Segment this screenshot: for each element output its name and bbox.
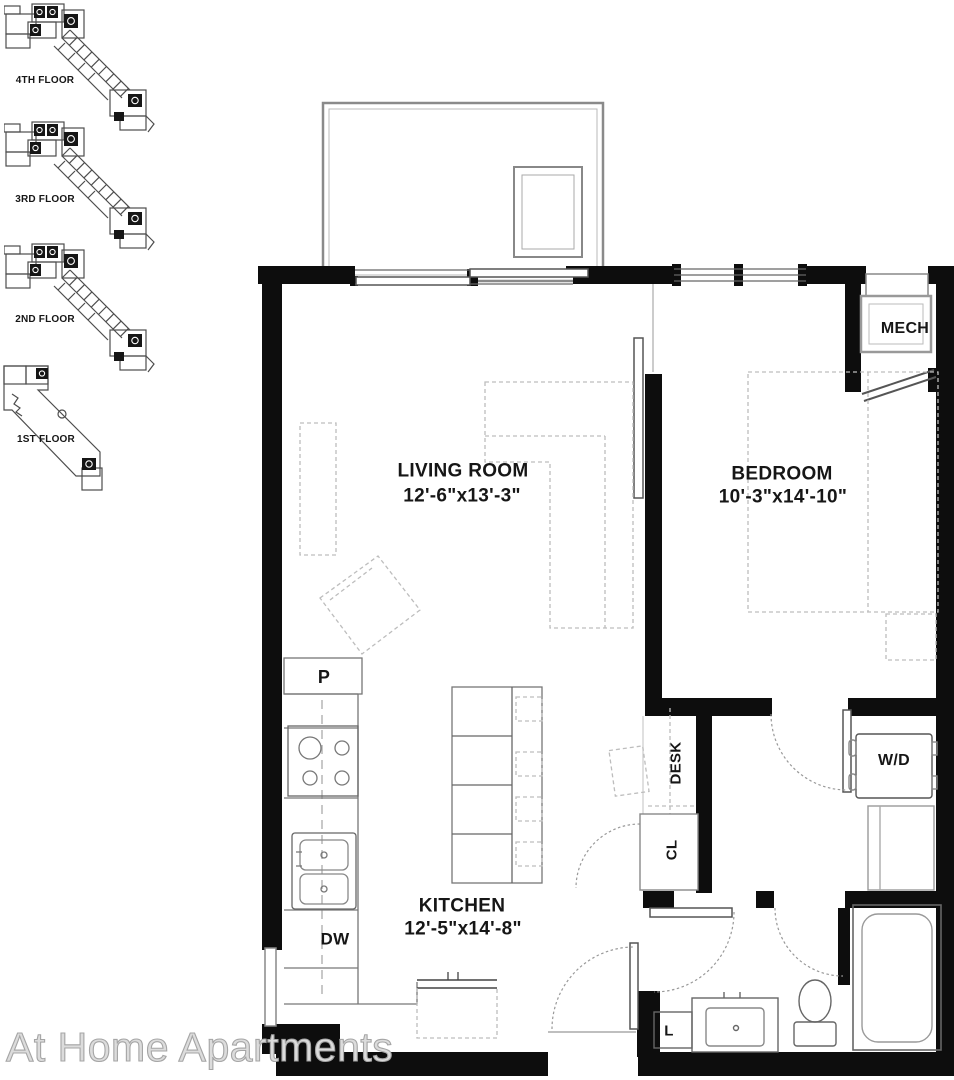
laundry-cabinet [868,806,934,890]
floor-key-label-2nd: 2ND FLOOR [15,315,75,325]
bedroom-sliding-door [634,338,643,498]
dishwasher-label: DW [321,931,350,948]
closet-door-arc [576,824,640,888]
linen-label: L [664,1024,673,1039]
desk-label: DESK [669,742,684,785]
stool [516,752,542,776]
mech-door [862,370,936,401]
balcony-slider-panel-2 [470,269,588,277]
bathtub-basin [862,914,932,1042]
wd-closet-door [843,710,851,792]
wc-door-arc [775,908,843,976]
balcony-slider-panel [356,277,470,285]
vanity-sink [706,1008,764,1046]
tv-console [300,423,336,555]
entry-door-arc [552,947,634,1029]
bathroom-door-arc [654,912,734,992]
left-wall-window [265,948,276,1026]
mech-room [861,274,936,401]
nightstand [886,614,936,660]
wd-door-arc [771,714,847,790]
lounge-chair [320,556,420,654]
stool [516,797,542,821]
watermark: At Home Apartments [6,1024,393,1071]
stool [516,697,542,721]
kitchen-fixtures [284,658,542,1004]
washer-dryer-label: W/D [878,753,910,769]
living-room-dims: 12'-6"x13'-3" [403,487,521,506]
bathroom-door [650,908,732,917]
balcony-storage [514,167,582,257]
refrigerator-front [417,980,497,988]
stove [288,726,358,796]
bedroom-dims: 10'-3"x14'-10" [719,488,847,507]
kitchen-sink [292,833,356,909]
pantry-label: P [318,668,330,686]
floor-key-label-3rd: 3RD FLOOR [15,195,75,205]
closet-label: CL [665,840,680,861]
floor-key-label-1st: 1ST FLOOR [17,435,75,445]
refrigerator-body [417,988,497,1038]
balcony [323,103,603,281]
stool [516,842,542,866]
kitchen-dims: 12'-5"x14'-8" [404,920,522,939]
entry-door [630,943,638,1029]
kitchen-name: KITCHEN [419,897,506,916]
toilet-tank [794,1022,836,1046]
toilet-bowl [799,980,831,1022]
mech-label: MECH [881,321,929,337]
living-room-name: LIVING ROOM [397,462,528,481]
bathtub [853,905,941,1050]
floor-key-label-4th: 4TH FLOOR [16,76,74,86]
bedroom-name: BEDROOM [731,465,832,484]
floor-plan-page: 4TH FLOOR 3RD FLOOR 2ND FLOOR 1ST FLOOR … [0,0,954,1080]
